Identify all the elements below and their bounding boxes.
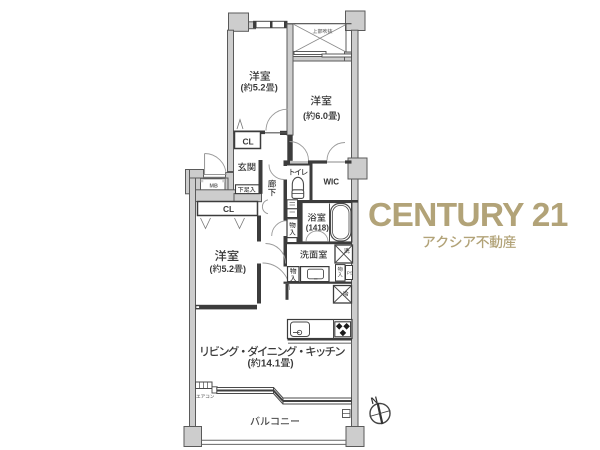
svg-text:6.0: 6.0 (315, 111, 328, 121)
svg-text:CENTURY 21: CENTURY 21 (368, 197, 568, 234)
svg-text:WIC: WIC (324, 177, 340, 186)
svg-text:PS: PS (347, 271, 353, 276)
svg-text:5.2: 5.2 (221, 264, 234, 274)
svg-text:MB: MB (210, 183, 218, 189)
svg-text:5.2: 5.2 (253, 83, 266, 93)
svg-text:): ) (337, 111, 340, 121)
svg-text:): ) (243, 264, 246, 274)
svg-text:14.1: 14.1 (261, 358, 281, 369)
svg-text:CL: CL (223, 204, 234, 214)
svg-text:CL: CL (243, 136, 254, 146)
svg-text:): ) (290, 358, 293, 369)
svg-text:(: ( (210, 264, 213, 274)
svg-text:): ) (275, 83, 278, 93)
